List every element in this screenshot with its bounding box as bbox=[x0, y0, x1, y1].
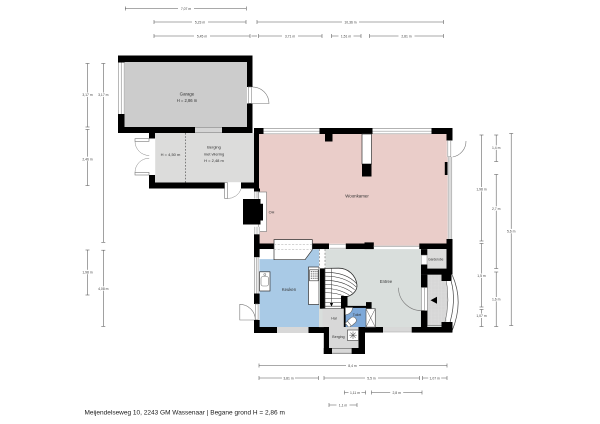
svg-text:2,7 m: 2,7 m bbox=[492, 207, 501, 211]
svg-text:1,98 m: 1,98 m bbox=[476, 188, 487, 192]
svg-text:H = 2,86 m: H = 2,86 m bbox=[177, 98, 198, 103]
svg-text:3,17 m: 3,17 m bbox=[98, 93, 109, 97]
svg-text:2,81 m: 2,81 m bbox=[401, 34, 412, 38]
svg-text:4,08 m: 4,08 m bbox=[98, 287, 109, 291]
svg-text:1,1 m: 1,1 m bbox=[339, 403, 348, 407]
svg-text:1,11 m: 1,11 m bbox=[350, 391, 360, 395]
svg-text:OH: OH bbox=[269, 211, 275, 215]
svg-text:H = 4,50 m: H = 4,50 m bbox=[161, 152, 181, 157]
svg-text:1,98 m: 1,98 m bbox=[82, 270, 93, 274]
svg-text:5,45 m: 5,45 m bbox=[197, 34, 208, 38]
svg-text:1,07 m: 1,07 m bbox=[476, 314, 487, 318]
svg-text:2,8 m: 2,8 m bbox=[392, 391, 401, 395]
svg-text:met vliering: met vliering bbox=[204, 151, 224, 156]
svg-text:Garage: Garage bbox=[180, 92, 195, 97]
svg-text:Meijendelseweg 10, 2243 GM Was: Meijendelseweg 10, 2243 GM Wassenaar | B… bbox=[85, 409, 285, 416]
svg-text:5,6 m: 5,6 m bbox=[507, 230, 516, 234]
svg-text:3,17 m: 3,17 m bbox=[82, 93, 93, 97]
svg-text:7,07 m: 7,07 m bbox=[181, 7, 192, 11]
svg-text:Berging: Berging bbox=[332, 335, 344, 339]
svg-text:3,71 m: 3,71 m bbox=[285, 34, 296, 38]
svg-text:1,5 m: 1,5 m bbox=[477, 274, 486, 278]
svg-text:1,51 m: 1,51 m bbox=[341, 34, 352, 38]
svg-text:3,81 m: 3,81 m bbox=[283, 376, 294, 380]
svg-text:1,4 m: 1,4 m bbox=[492, 146, 501, 150]
svg-text:Entree: Entree bbox=[380, 279, 393, 284]
svg-text:Berging: Berging bbox=[207, 145, 221, 150]
svg-text:1,07 m: 1,07 m bbox=[430, 376, 441, 380]
svg-text:10,36 m: 10,36 m bbox=[344, 20, 356, 24]
svg-text:1,6 m: 1,6 m bbox=[492, 298, 501, 302]
svg-text:Hal: Hal bbox=[331, 317, 337, 321]
svg-text:5,5 m: 5,5 m bbox=[367, 376, 376, 380]
svg-text:H = 2,48 m: H = 2,48 m bbox=[204, 158, 224, 163]
svg-text:5,23 m: 5,23 m bbox=[195, 20, 206, 24]
svg-text:8,4 m: 8,4 m bbox=[348, 364, 357, 368]
svg-text:Keuken: Keuken bbox=[282, 287, 297, 292]
svg-text:Garderobe: Garderobe bbox=[428, 257, 443, 261]
svg-text:Woonkamer: Woonkamer bbox=[345, 194, 369, 199]
svg-text:2,46 m: 2,46 m bbox=[82, 157, 93, 161]
svg-text:Toilet: Toilet bbox=[353, 313, 361, 317]
